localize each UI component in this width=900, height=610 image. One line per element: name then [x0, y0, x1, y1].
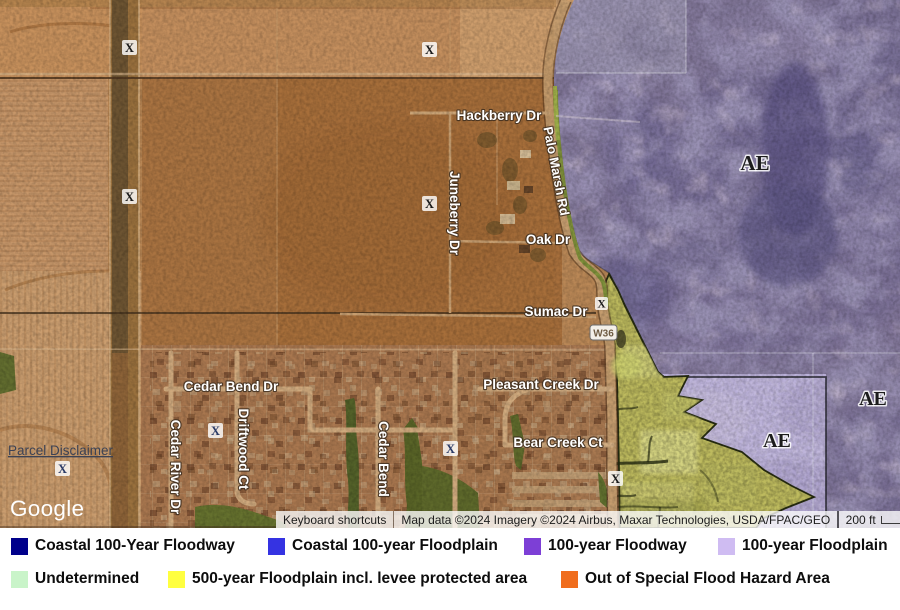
svg-text:Cedar River Dr: Cedar River Dr	[168, 420, 183, 515]
svg-text:Bear Creek Ct: Bear Creek Ct	[513, 435, 603, 450]
svg-text:X: X	[611, 472, 620, 486]
svg-text:X: X	[597, 299, 606, 311]
svg-text:X: X	[425, 197, 434, 211]
svg-text:AE: AE	[859, 388, 887, 410]
svg-text:X: X	[125, 190, 134, 204]
svg-text:Parcel Disclaimer: Parcel Disclaimer	[8, 443, 114, 458]
svg-text:Google: Google	[10, 496, 84, 521]
svg-text:X: X	[425, 43, 434, 57]
svg-text:AE: AE	[763, 430, 791, 452]
svg-text:X: X	[446, 442, 455, 456]
svg-text:Driftwood Ct: Driftwood Ct	[236, 409, 251, 490]
svg-text:X: X	[211, 424, 220, 438]
svg-text:Oak Dr: Oak Dr	[526, 232, 571, 247]
svg-text:W36: W36	[593, 329, 614, 340]
svg-text:Juneberry Dr: Juneberry Dr	[447, 171, 462, 256]
svg-text:X: X	[125, 41, 134, 55]
svg-text:Pleasant Creek Dr: Pleasant Creek Dr	[483, 377, 599, 392]
svg-text:Sumac Dr: Sumac Dr	[524, 304, 588, 319]
svg-text:Hackberry Dr: Hackberry Dr	[457, 108, 543, 123]
svg-text:X: X	[58, 462, 67, 476]
svg-text:AE: AE	[740, 151, 769, 175]
svg-text:Cedar Bend Dr: Cedar Bend Dr	[184, 379, 279, 394]
svg-text:Cedar Bend: Cedar Bend	[376, 421, 391, 497]
